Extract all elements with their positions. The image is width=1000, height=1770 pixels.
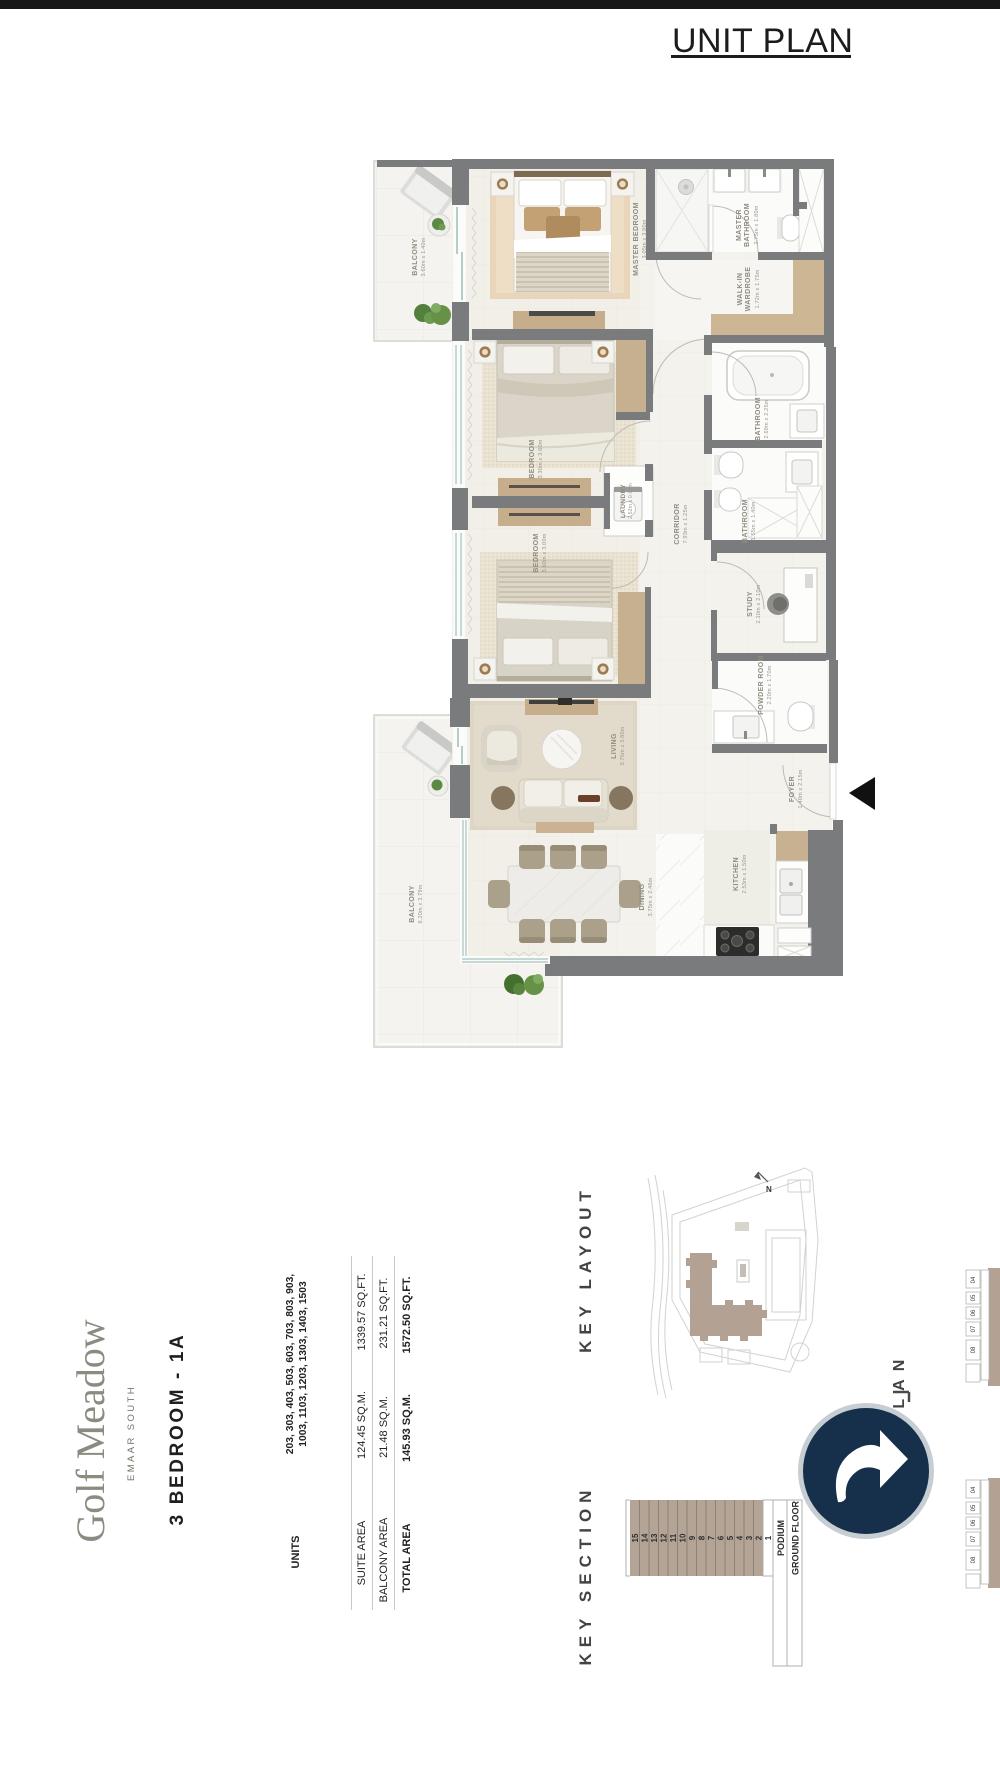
svg-text:BATHROOM: BATHROOM <box>742 499 749 543</box>
svg-text:BALCONY: BALCONY <box>412 238 419 275</box>
svg-text:7.93m x 1.25m: 7.93m x 1.25m <box>683 504 689 543</box>
svg-text:1339.57 SQ.FT.: 1339.57 SQ.FT. <box>356 1273 368 1350</box>
svg-text:08: 08 <box>971 1556 977 1563</box>
svg-text:14: 14 <box>641 1533 650 1542</box>
svg-text:13: 13 <box>650 1533 659 1542</box>
svg-text:5: 5 <box>726 1535 735 1540</box>
svg-text:KEY SECTION: KEY SECTION <box>576 1485 595 1666</box>
svg-text:1.72m x 1.75m: 1.72m x 1.75m <box>755 269 761 308</box>
svg-text:1.55m x 1.40m: 1.55m x 1.40m <box>751 501 757 540</box>
svg-text:2.52m x 0.80m: 2.52m x 0.80m <box>628 483 634 519</box>
svg-text:3.75m x 3.80m: 3.75m x 3.80m <box>620 726 626 765</box>
svg-text:07: 07 <box>971 1325 977 1332</box>
svg-text:BEDROOM: BEDROOM <box>529 439 536 478</box>
svg-text:05: 05 <box>971 1504 977 1511</box>
svg-text:SUITE AREA: SUITE AREA <box>356 1520 368 1585</box>
svg-text:15: 15 <box>631 1533 640 1542</box>
svg-text:3.75m x 2.46m: 3.75m x 2.46m <box>648 877 654 916</box>
svg-text:8: 8 <box>698 1535 707 1540</box>
svg-text:BEDROOM: BEDROOM <box>533 533 540 572</box>
svg-text:12: 12 <box>660 1533 669 1542</box>
svg-text:124.45 SQ.M.: 124.45 SQ.M. <box>356 1391 368 1459</box>
svg-text:6: 6 <box>717 1535 726 1540</box>
svg-text:PODIUM: PODIUM <box>776 1520 786 1556</box>
svg-text:9: 9 <box>688 1535 697 1540</box>
svg-text:3 BEDROOM - 1A: 3 BEDROOM - 1A <box>167 1333 188 1526</box>
svg-text:KEY LAYOUT: KEY LAYOUT <box>576 1185 595 1353</box>
svg-text:STUDY: STUDY <box>747 591 754 617</box>
svg-text:2: 2 <box>755 1535 764 1540</box>
svg-text:FOYER: FOYER <box>789 776 796 802</box>
svg-text:2.10m x 2.10m: 2.10m x 2.10m <box>756 584 762 623</box>
svg-text:1: 1 <box>764 1535 773 1540</box>
svg-text:2.75m x 1.80m: 2.75m x 1.80m <box>754 205 760 244</box>
svg-text:1.40m x 2.15m: 1.40m x 2.15m <box>798 769 804 808</box>
svg-text:06: 06 <box>971 1519 977 1526</box>
svg-text:07: 07 <box>971 1535 977 1542</box>
svg-text:3.05m x 3.90m: 3.05m x 3.90m <box>642 219 648 258</box>
svg-text:KITCHEN: KITCHEN <box>733 857 740 891</box>
svg-text:3.60m x 3.00m: 3.60m x 3.00m <box>542 533 548 572</box>
svg-text:145.93 SQ.M.: 145.93 SQ.M. <box>401 1394 413 1462</box>
svg-text:BATHROOM: BATHROOM <box>755 397 762 441</box>
svg-text:UNIT PLAN: UNIT PLAN <box>672 22 853 60</box>
svg-text:3.30m x 3.60m: 3.30m x 3.60m <box>538 439 544 478</box>
svg-text:POWDER ROOM: POWDER ROOM <box>758 655 765 715</box>
svg-text:N: N <box>766 1185 772 1194</box>
svg-text:EMAAR SOUTH: EMAAR SOUTH <box>126 1385 137 1481</box>
svg-text:BALCONY: BALCONY <box>409 885 416 922</box>
svg-text:08: 08 <box>971 1346 977 1353</box>
svg-text:10: 10 <box>679 1533 688 1542</box>
svg-text:MASTERBATHROOM: MASTERBATHROOM <box>736 203 751 247</box>
svg-text:231.21 SQ.FT.: 231.21 SQ.FT. <box>378 1278 390 1349</box>
svg-text:7: 7 <box>707 1535 716 1540</box>
svg-text:UNITS: UNITS <box>290 1536 302 1569</box>
svg-text:203, 303, 403, 503, 603, 703,: 203, 303, 403, 503, 603, 703, 803, 903, <box>285 1274 296 1454</box>
svg-text:11: 11 <box>669 1533 678 1542</box>
svg-text:MASTER BEDROOM: MASTER BEDROOM <box>633 202 640 276</box>
svg-text:GROUND FLOOR: GROUND FLOOR <box>791 1501 801 1575</box>
svg-text:WALK-INWARDROBE: WALK-INWARDROBE <box>737 267 752 312</box>
svg-text:Golf Meadow: Golf Meadow <box>68 1319 113 1542</box>
svg-text:05: 05 <box>971 1294 977 1301</box>
svg-text:2.69m x 2.25m: 2.69m x 2.25m <box>764 399 770 438</box>
svg-text:21.48 SQ.M.: 21.48 SQ.M. <box>378 1396 390 1458</box>
svg-text:LAUNDRY: LAUNDRY <box>620 484 627 519</box>
svg-text:1572.50 SQ.FT.: 1572.50 SQ.FT. <box>401 1276 413 1353</box>
svg-text:3.60m x 1.40m: 3.60m x 1.40m <box>421 237 427 276</box>
svg-text:2.53m x 1.50m: 2.53m x 1.50m <box>742 854 748 893</box>
svg-text:6.20m x 3.79m: 6.20m x 3.79m <box>418 884 424 923</box>
svg-text:3: 3 <box>745 1535 754 1540</box>
svg-text:04: 04 <box>971 1276 977 1283</box>
svg-text:1003, 1103, 1203, 1303, 1403,: 1003, 1103, 1203, 1303, 1403, 1503 <box>298 1281 309 1447</box>
svg-text:LIVING: LIVING <box>611 733 618 759</box>
svg-text:DINING: DINING <box>639 883 646 910</box>
svg-text:TOTAL AREA: TOTAL AREA <box>401 1523 413 1592</box>
svg-text:4: 4 <box>736 1535 745 1540</box>
svg-text:06: 06 <box>971 1309 977 1316</box>
svg-text:BALCONY AREA: BALCONY AREA <box>378 1517 390 1602</box>
svg-text:2.20m x 1.70m: 2.20m x 1.70m <box>767 665 773 704</box>
svg-text:04: 04 <box>971 1486 977 1493</box>
svg-text:CORRIDOR: CORRIDOR <box>674 503 681 544</box>
